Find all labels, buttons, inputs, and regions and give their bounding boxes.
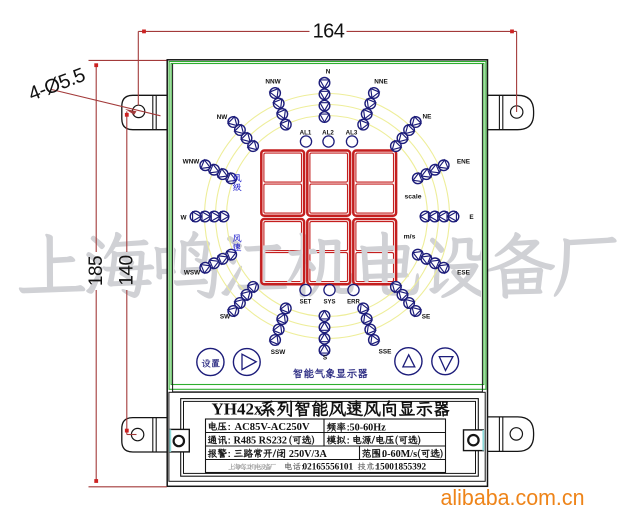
svg-text:E: E [469,214,474,221]
svg-text:NW: NW [217,114,229,121]
svg-text:WNW: WNW [183,159,201,166]
svg-text:NE: NE [423,114,433,121]
svg-text::: : [228,449,231,460]
svg-text::: : [347,435,350,446]
svg-text:S: S [323,355,328,362]
svg-text:AC85V-AC250V: AC85V-AC250V [235,422,310,433]
svg-text:W: W [180,215,187,222]
svg-text:185: 185 [86,256,107,286]
svg-text:NNW: NNW [265,79,281,86]
svg-text:15001855392: 15001855392 [376,461,427,471]
svg-text::: : [228,435,231,446]
svg-text:ESE: ESE [457,270,471,277]
svg-text:164: 164 [313,21,345,43]
svg-text:YH42x: YH42x [212,400,264,419]
svg-text:NNE: NNE [374,79,388,86]
svg-text:250V/3A: 250V/3A [289,449,328,460]
svg-text:140: 140 [117,255,138,285]
svg-text:R485 RS232: R485 RS232 [234,435,288,446]
svg-text:SW: SW [220,314,231,321]
svg-text:SE: SE [422,314,431,321]
svg-text:m/s: m/s [404,234,416,241]
svg-text:scale: scale [404,194,421,201]
svg-text:alibaba.com.cn: alibaba.com.cn [441,485,585,510]
svg-text:N: N [326,69,331,76]
svg-text:50-60Hz: 50-60Hz [350,423,387,434]
svg-text:ENE: ENE [457,159,471,166]
svg-text:02165556101: 02165556101 [303,461,354,471]
svg-text:SET: SET [300,300,312,306]
svg-text::: : [228,422,231,433]
svg-text:0-60M/s: 0-60M/s [382,449,417,460]
svg-text:SYS: SYS [323,300,335,306]
svg-text:SSW: SSW [271,349,287,356]
svg-text:SSE: SSE [379,349,393,356]
svg-text:WSW: WSW [184,270,201,277]
svg-text:ERR: ERR [347,300,360,306]
